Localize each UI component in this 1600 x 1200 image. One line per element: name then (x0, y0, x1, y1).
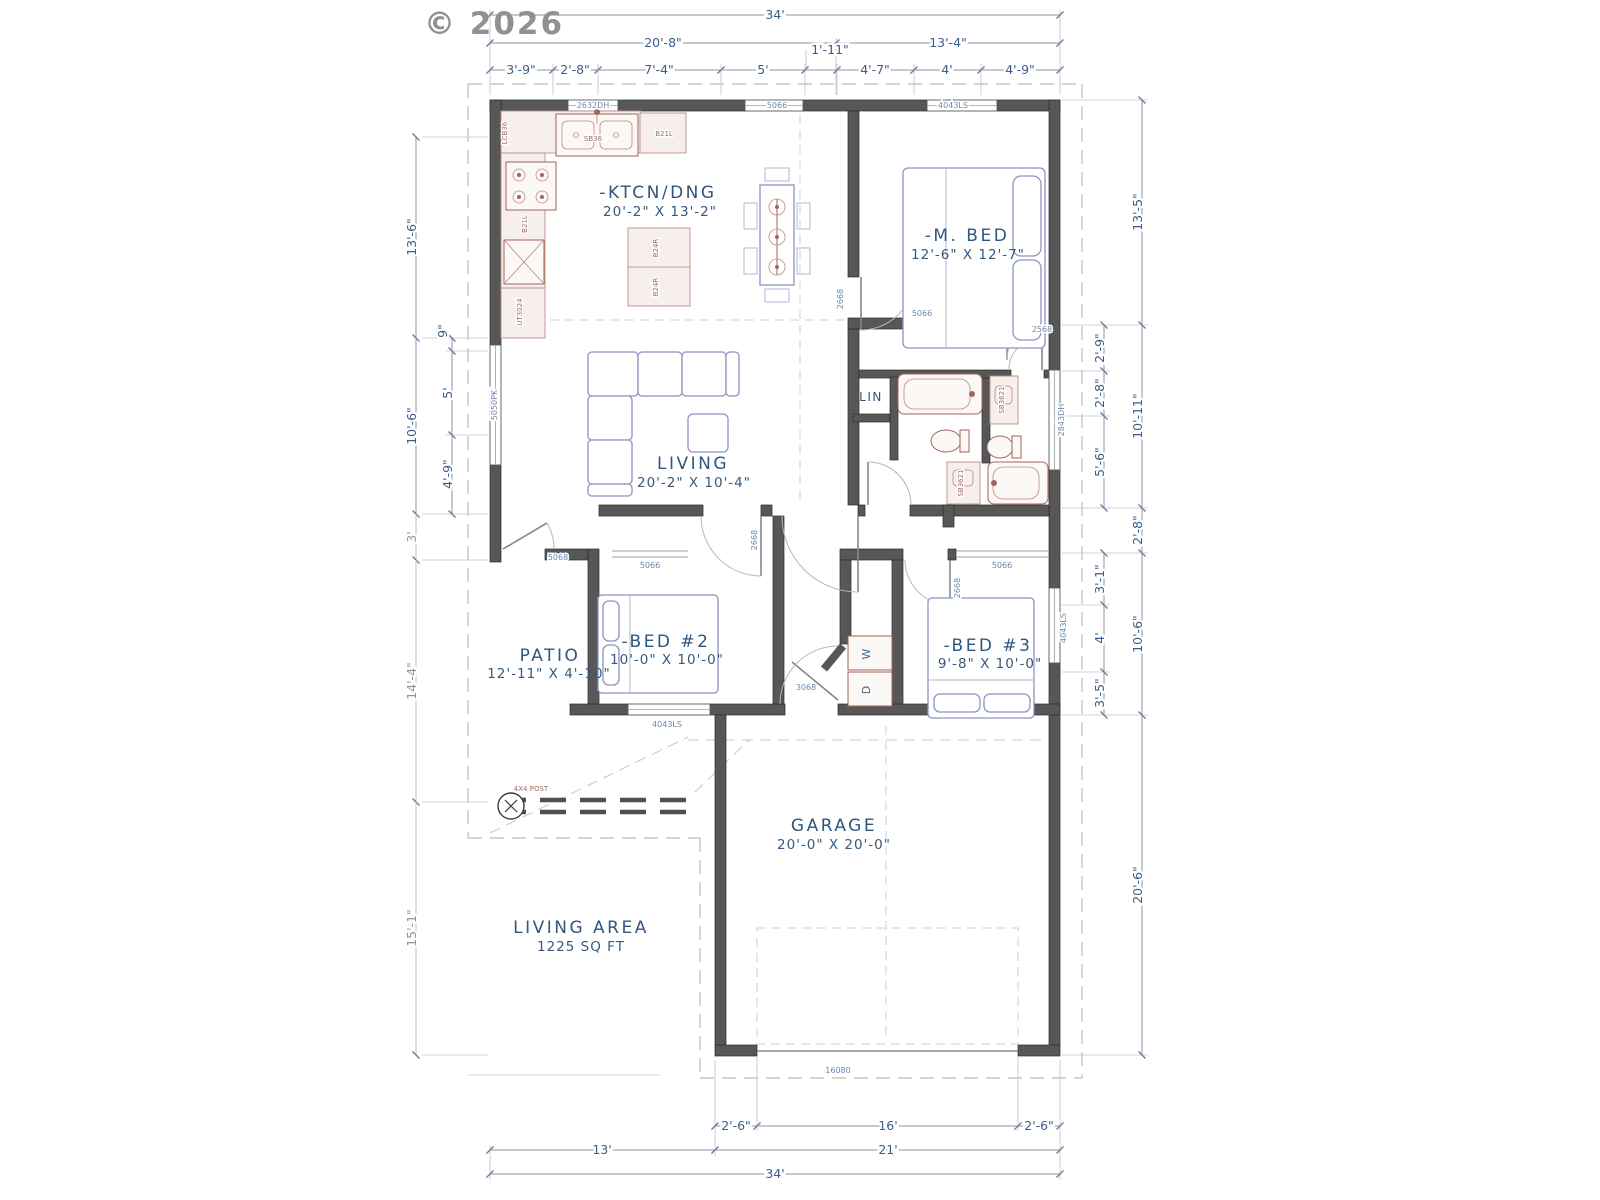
dim-left-i2: 5' (440, 387, 455, 398)
post-label: 4X4 POST (514, 785, 549, 793)
room-label-living: LIVING (657, 454, 729, 474)
dim-right-i3: 5'-6" (1092, 447, 1107, 477)
dim-left-o1: 13'-6" (404, 218, 419, 256)
washer-label: W (860, 648, 873, 659)
room-label-bed2: -BED #2 (622, 632, 711, 652)
laundry-fixtures (848, 636, 892, 706)
patio-door-label: 5068 (548, 553, 568, 562)
garage-door-label: 16080 (825, 1066, 850, 1075)
patio-beam: 4X4 POST (498, 785, 688, 819)
kitchen-sink (556, 109, 638, 156)
dishwasher (504, 240, 544, 284)
dryer-label: D (860, 686, 873, 694)
room-size-bed2: 10'-0" X 10'-0" (610, 652, 724, 668)
dining-window-label: 5066 (767, 101, 787, 110)
master-window-label: 4043LS (938, 101, 968, 110)
ottoman (688, 414, 728, 452)
master-closet-label: 5066 (912, 309, 932, 318)
sink-label: SB36 (584, 135, 603, 143)
dim-top-left: 20'-8" (644, 35, 682, 50)
cab-utility-label: UT3024 (516, 298, 524, 326)
cab-b21l-a-label: B21L (655, 130, 673, 138)
cab-b21l-b-label: B21L (521, 215, 529, 233)
room-label-master: -M. BED (925, 226, 1010, 246)
living-window-label: 5050PK (490, 389, 499, 420)
dim-bottom-g1: 2'-6" (721, 1118, 751, 1133)
dim-bottom-b2: 21' (878, 1142, 897, 1157)
dim-top-s1: 3'-9" (506, 62, 536, 77)
dim-right-o3: 2'-8" (1130, 515, 1145, 545)
bed2-door-label: 2668 (750, 530, 759, 550)
dim-top-total: 34' (765, 7, 784, 22)
room-label-linen: LIN (859, 390, 883, 404)
bath-window-label: 2843DH (1057, 404, 1066, 437)
dim-right-o4: 10'-6" (1130, 615, 1145, 653)
bed2-closet-label: 5066 (640, 561, 660, 570)
room-size-patio: 12'-11" X 4'-10" (487, 666, 611, 682)
island-b-label: B24R (652, 278, 660, 297)
dim-right-i6: 3'-5" (1092, 678, 1107, 708)
dim-right-i1: 2'-9" (1092, 333, 1107, 363)
room-size-garage: 20'-0" X 20'-0" (777, 837, 891, 853)
room-label-bed3: -BED #3 (944, 636, 1033, 656)
dim-top-s5: 1'-11" (811, 42, 849, 57)
master-tub (988, 462, 1048, 504)
entry-door (780, 646, 838, 704)
dim-left-o5: 15'-1" (404, 909, 419, 947)
bed2-window (628, 704, 710, 715)
dim-left-i1: 9" (435, 324, 450, 338)
dim-top-s4: 5' (757, 62, 768, 77)
dim-left-o2: 10'-6" (404, 407, 419, 445)
stove (506, 162, 556, 210)
dim-top-s8: 4'-9" (1005, 62, 1035, 77)
kitchen-window-label: 2632DH (577, 101, 610, 110)
bath-fixtures (898, 374, 1048, 504)
bed2-window-label: 4043LS (652, 720, 682, 729)
dim-bottom-total: 34' (765, 1166, 784, 1181)
dim-top-s7: 4' (941, 62, 952, 77)
room-label-patio: PATIO (520, 646, 581, 666)
dim-top-s2: 2'-8" (560, 62, 590, 77)
entry-door-label: 3068 (796, 683, 816, 692)
dim-right-i5: 4' (1092, 632, 1107, 643)
dim-left-i3: 4'-9" (440, 459, 455, 489)
dim-top-s3: 7'-4" (644, 62, 674, 77)
hall-bath-door (868, 462, 911, 505)
hall-toilet (931, 430, 969, 452)
dim-left-o3: 3' (404, 531, 419, 542)
kitchen-fixtures (501, 109, 690, 338)
dim-top-right: 13'-4" (929, 35, 967, 50)
dim-top-s6: 4'-7" (860, 62, 890, 77)
master-bath-door-label: 2568 (1032, 325, 1052, 334)
bed3-door-label: 2668 (953, 578, 962, 598)
vanity-a-label: SB3621 (998, 386, 1006, 413)
floor-plan-page: 4X4 POST (0, 0, 1600, 1200)
dim-right-i4: 3'-1" (1092, 564, 1107, 594)
dim-left-o4: 14'-4" (404, 662, 419, 700)
master-toilet (987, 436, 1021, 458)
floor-plan-drawing: 4X4 POST (0, 0, 1600, 1200)
room-size-living: 20'-2" X 10'-4" (637, 475, 751, 491)
dim-right-i2: 2'-8" (1092, 378, 1107, 408)
room-size-kitchen: 20'-2" X 13'-2" (603, 204, 717, 220)
dim-bottom-g2: 16' (878, 1118, 897, 1133)
room-label-living-area: LIVING AREA (513, 918, 649, 938)
dim-right-o2: 10'-11" (1130, 393, 1145, 439)
dim-bottom-b1: 13' (592, 1142, 611, 1157)
bed3-closet-label: 5066 (992, 561, 1012, 570)
cab-tall-label: LCB36 (501, 121, 509, 144)
copyright-watermark: © 2026 (424, 6, 564, 42)
vanity-b-label: SB3621 (957, 469, 965, 496)
hall-tub (898, 374, 982, 414)
dim-right-o1: 13'-5" (1130, 193, 1145, 231)
room-size-bed3: 9'-8" X 10'-0" (938, 656, 1042, 672)
room-label-garage: GARAGE (791, 816, 877, 836)
patio-door (503, 523, 554, 549)
room-label-kitchen: -KTCN/DNG (599, 183, 716, 203)
master-door-label: 2668 (836, 289, 845, 309)
room-size-living-area: 1225 SQ FT (537, 939, 625, 955)
dim-right-o5: 20'-6" (1130, 866, 1145, 904)
island-a-label: B24R (652, 239, 660, 258)
dim-bottom-g3: 2'-6" (1024, 1118, 1054, 1133)
bed3-window-label: 4043LS (1059, 613, 1068, 643)
room-size-master: 12'-6" X 12'-7" (911, 247, 1025, 263)
